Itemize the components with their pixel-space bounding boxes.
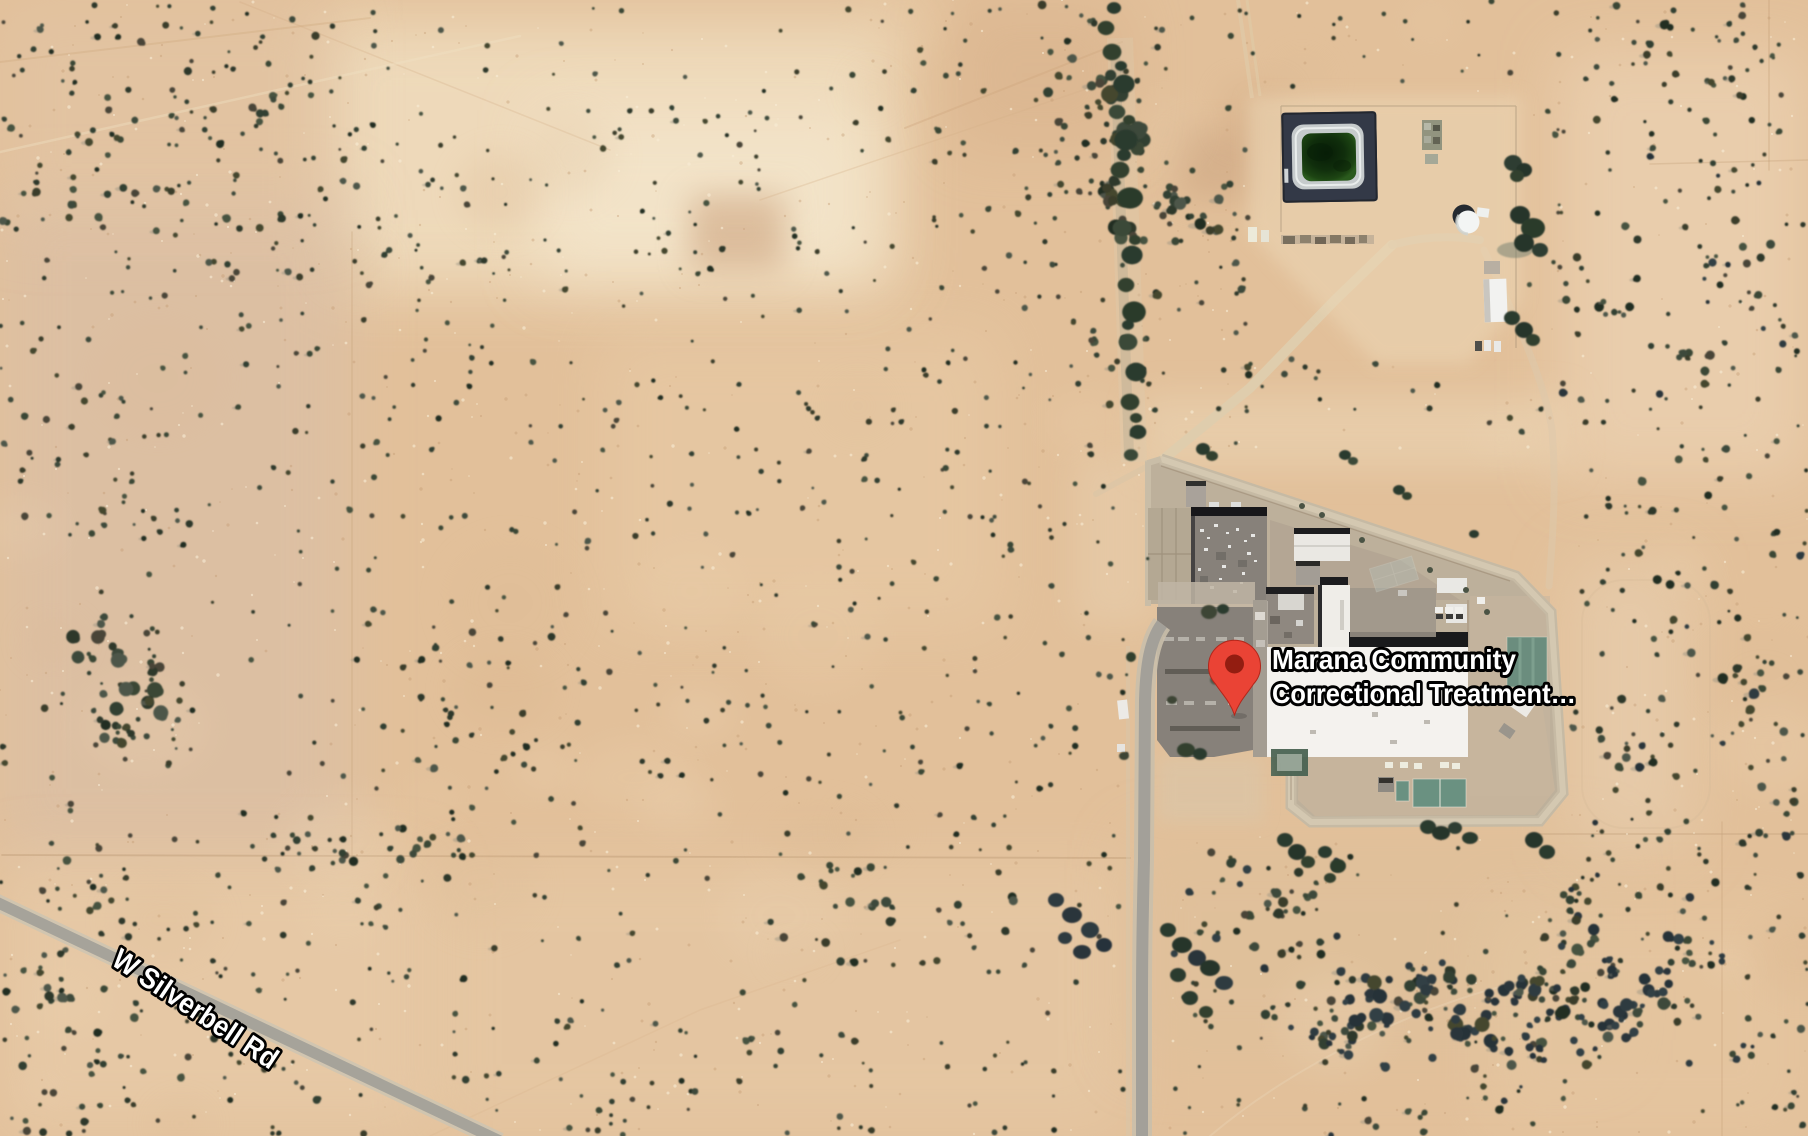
svg-text:Marana Community: Marana Community — [1272, 644, 1516, 675]
svg-text:Correctional Treatment…: Correctional Treatment… — [1272, 678, 1576, 709]
